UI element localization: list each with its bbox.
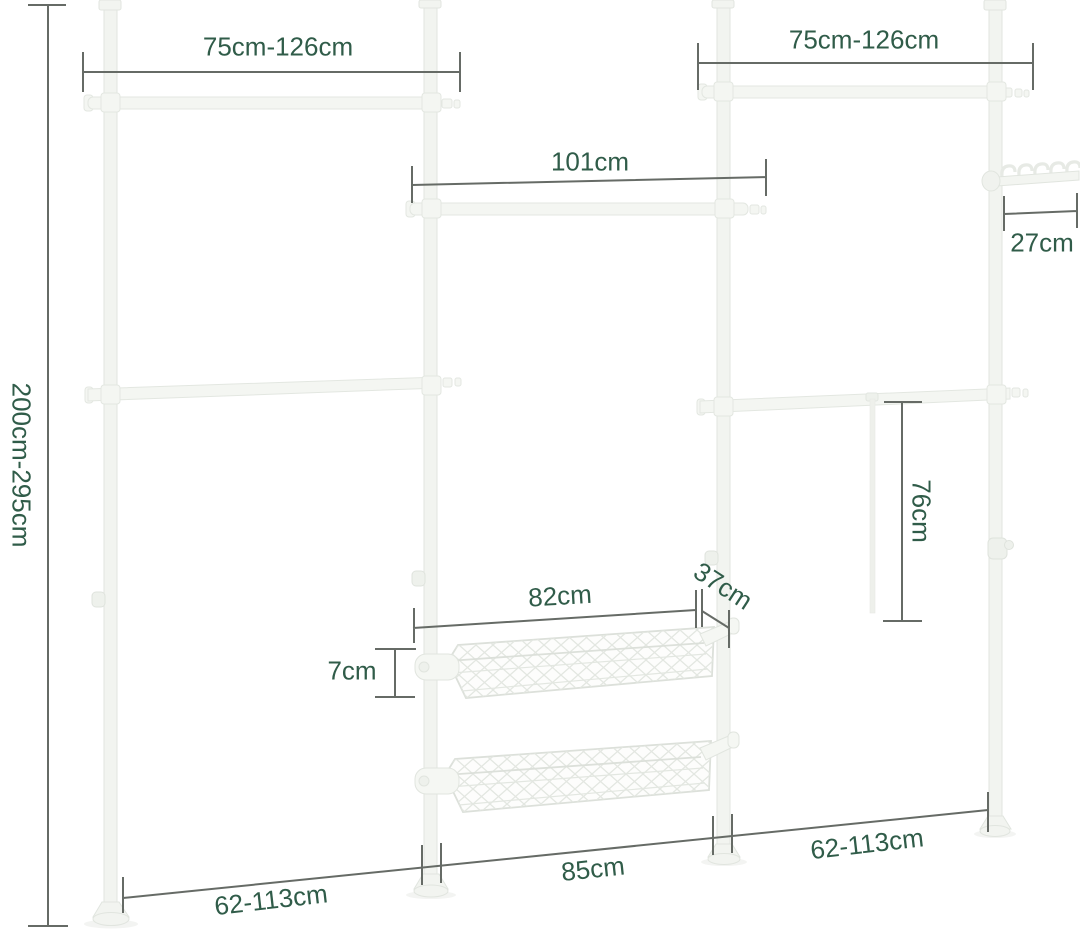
label-top-left-rod-width: 75cm-126cm: [203, 33, 353, 62]
label-basket-height: 7cm: [327, 657, 376, 686]
dim-basket-depth: [702, 610, 729, 648]
dimension-lines: [0, 0, 1080, 930]
label-middle-rod-width: 101cm: [551, 148, 629, 177]
label-hanging-rod-length: 76cm: [907, 479, 936, 543]
product-dimension-diagram: 75cm-126cm 75cm-126cm 101cm 27cm 200cm-2…: [0, 0, 1080, 930]
label-basket-width: 82cm: [527, 580, 592, 612]
label-hook-rail-width: 27cm: [1010, 229, 1074, 258]
dim-hook-rail: [1004, 193, 1077, 231]
label-bottom-center-span: 85cm: [560, 851, 626, 886]
label-top-right-rod-width: 75cm-126cm: [789, 26, 939, 55]
label-overall-height: 200cm-295cm: [7, 383, 36, 548]
dim-basket-height: [375, 649, 416, 697]
